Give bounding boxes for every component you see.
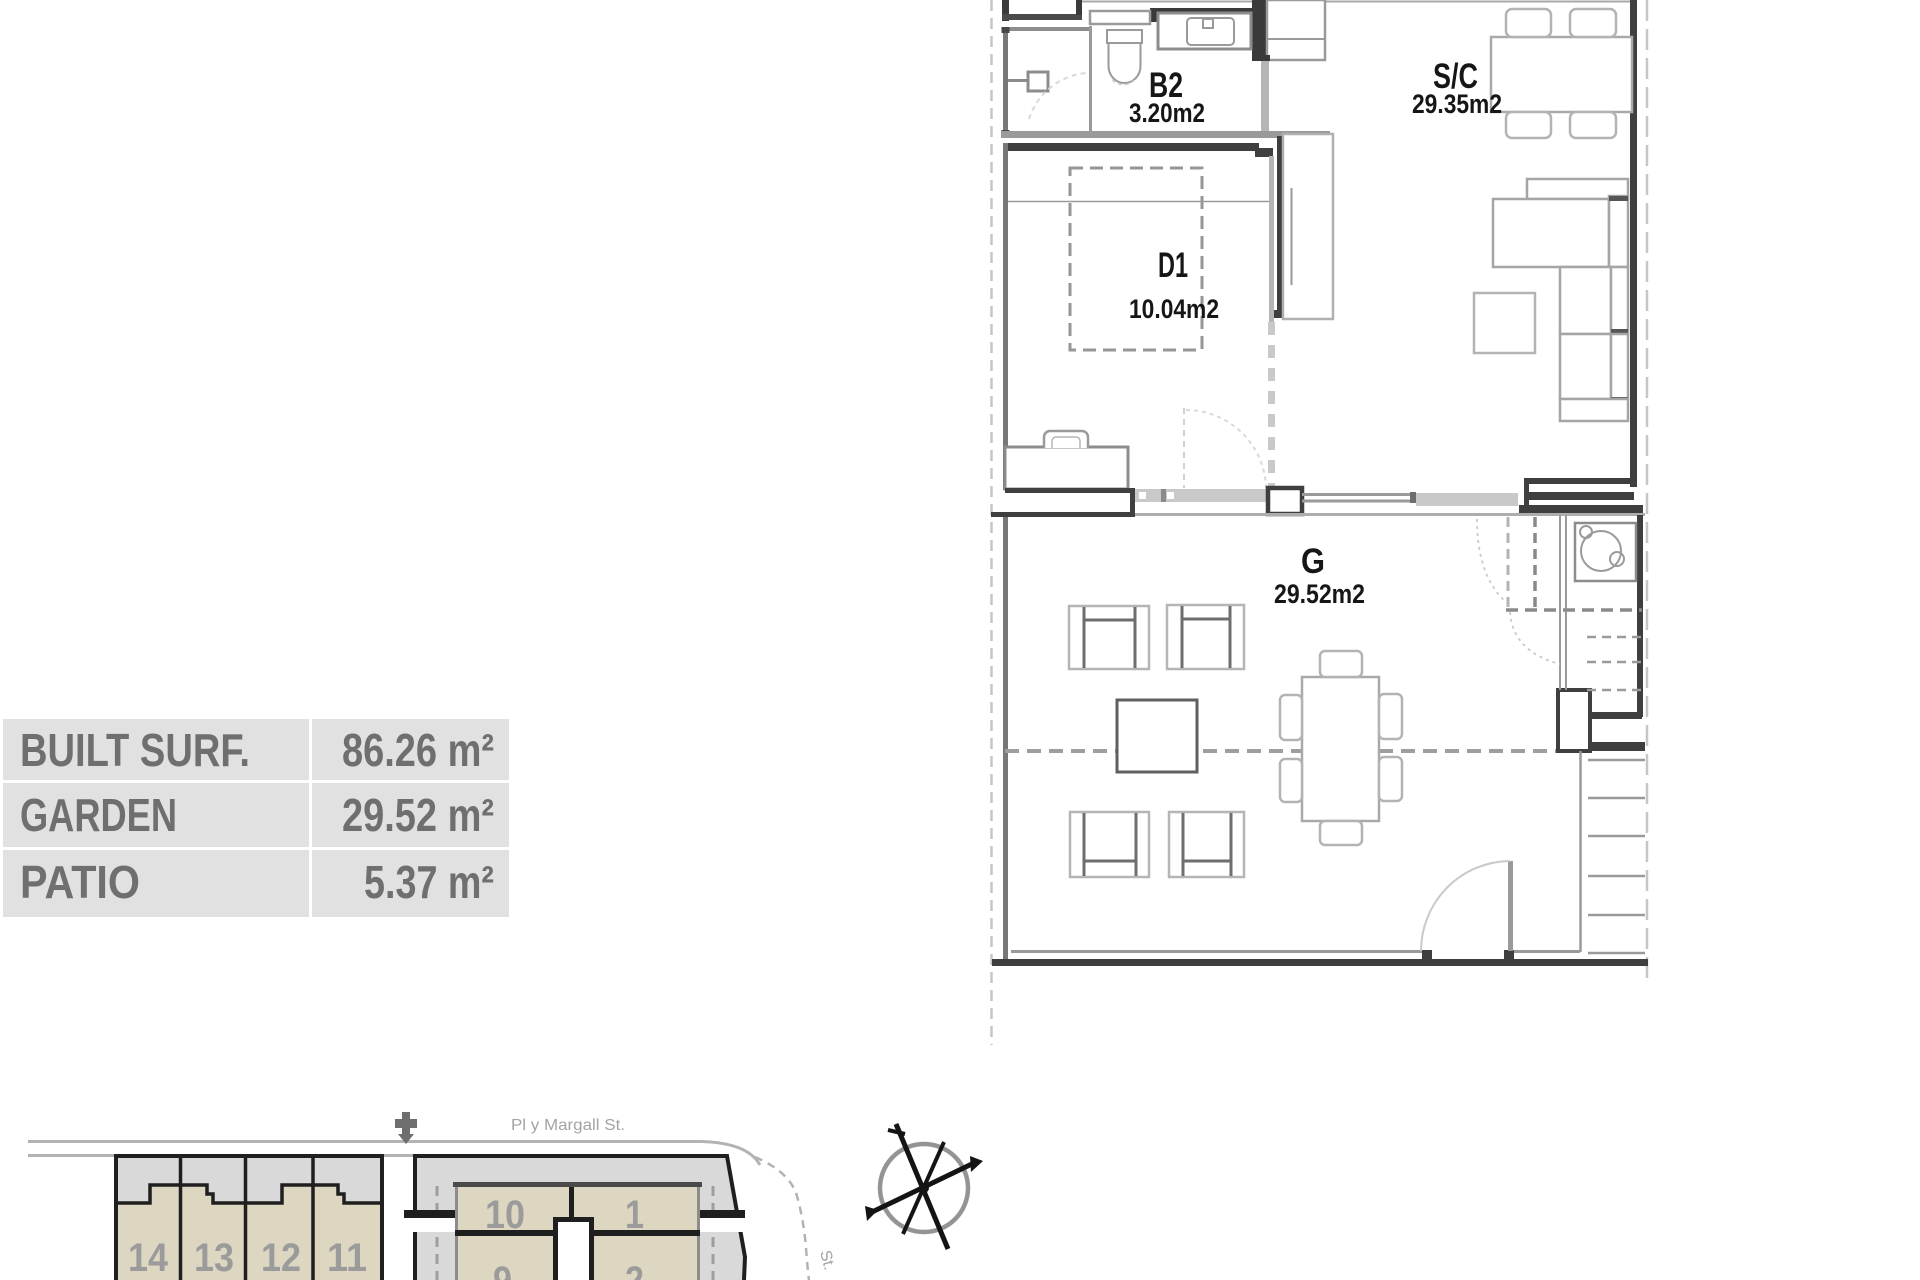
svg-text:2: 2 [625,1259,644,1280]
svg-text:5.37 m²: 5.37 m² [364,856,494,908]
svg-text:GARDEN: GARDEN [20,789,177,841]
svg-text:9: 9 [493,1259,512,1280]
svg-text:1: 1 [625,1193,644,1237]
svg-text:29.52m2: 29.52m2 [1274,579,1365,609]
svg-text:G: G [1301,542,1325,581]
svg-text:12: 12 [261,1236,301,1280]
svg-text:3.20m2: 3.20m2 [1129,98,1205,128]
svg-text:29.52 m²: 29.52 m² [342,789,494,841]
svg-text:10: 10 [485,1193,525,1237]
svg-text:13: 13 [194,1236,234,1280]
svg-text:Pl y Margall St.: Pl y Margall St. [511,1117,625,1134]
svg-text:10.04m2: 10.04m2 [1129,294,1219,324]
svg-text:11: 11 [327,1236,367,1280]
svg-text:14: 14 [128,1236,169,1280]
svg-text:BUILT SURF.: BUILT SURF. [20,724,250,776]
svg-text:D1: D1 [1158,246,1188,285]
svg-text:86.26 m²: 86.26 m² [342,724,494,776]
svg-text:29.35m2: 29.35m2 [1412,89,1502,119]
svg-text:PATIO: PATIO [20,856,140,908]
